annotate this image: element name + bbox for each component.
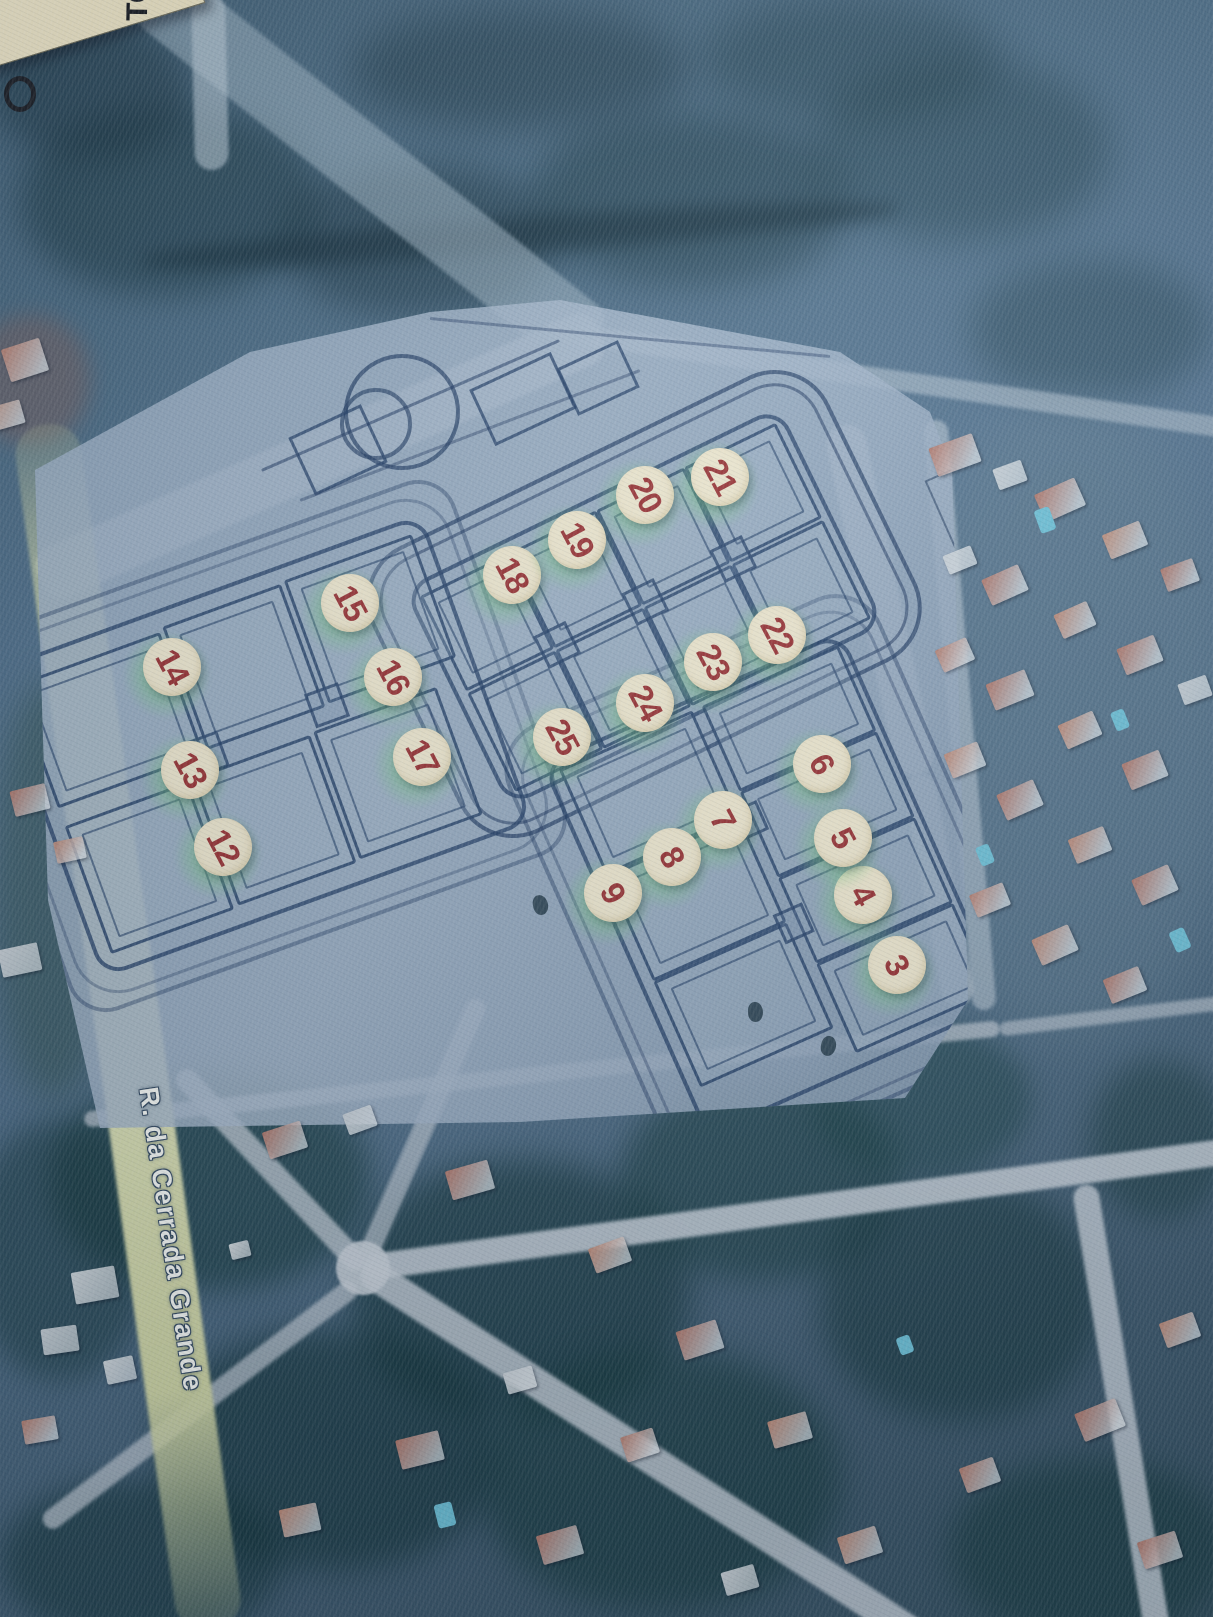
terrain-patch [700,0,1000,120]
lot-marker-number: 8 [651,840,693,873]
plan-tree-symbol [748,1002,763,1022]
lot-marker-number: 5 [822,821,864,854]
lot-marker-number: 3 [876,948,918,981]
lot-marker: 15 [321,574,379,632]
lot-marker-number: 12 [198,823,248,871]
lot-marker: 22 [748,606,806,664]
lot-marker-number: 14 [147,643,197,691]
lot-marker: 17 [393,728,451,786]
lot-marker-number: 20 [620,471,670,519]
corner-note-text: TO [121,0,156,21]
lot-marker-number: 13 [165,746,215,794]
terrain-patch [530,115,850,285]
lot-marker-number: 23 [688,638,738,686]
lot-marker-number: 25 [537,713,587,761]
lot-marker-number: 9 [592,876,634,909]
plan-tree-symbol [531,894,549,916]
house-roof [21,1415,59,1445]
lot-marker: 12 [194,818,252,876]
lot-marker: 25 [533,708,591,766]
lot-marker-number: 17 [397,733,447,781]
terrain-patch [350,10,690,130]
terrain-patch [820,1180,1100,1420]
lot-marker: 20 [616,466,674,524]
plan-sketch-line [430,317,830,358]
lot-marker: 16 [364,648,422,706]
house-roof [837,1526,884,1565]
lot-marker-number: 16 [368,653,418,701]
lot-marker: 13 [161,741,219,799]
lot-marker-number: 6 [801,747,843,780]
aerial-map-photo: 34567891213141516171819202122232425 R. d… [0,0,1213,1617]
house-roof [1159,1312,1202,1349]
house-roof [40,1325,79,1356]
lot-marker-number: 19 [552,516,602,564]
lot-marker: 14 [143,638,201,696]
terrain-patch [970,260,1210,400]
lot-marker: 6 [793,735,851,793]
lot-marker: 21 [691,448,749,506]
road-junction [336,1241,390,1295]
road-segment [191,0,229,170]
lot-marker: 5 [814,809,872,867]
lot-marker: 9 [584,864,642,922]
lot-marker-number: 22 [752,611,802,659]
house-roof [103,1355,137,1385]
lot-marker: 24 [616,674,674,732]
lot-marker-number: 21 [695,453,745,501]
terrain-patch [1090,1060,1213,1220]
lot-marker-number: 15 [325,579,375,627]
corner-note-ring-glyph [4,76,36,112]
lot-marker: 23 [684,633,742,691]
lot-marker-number: 7 [702,803,744,836]
lot-marker: 8 [643,828,701,886]
lot-marker-number: 24 [620,679,670,727]
